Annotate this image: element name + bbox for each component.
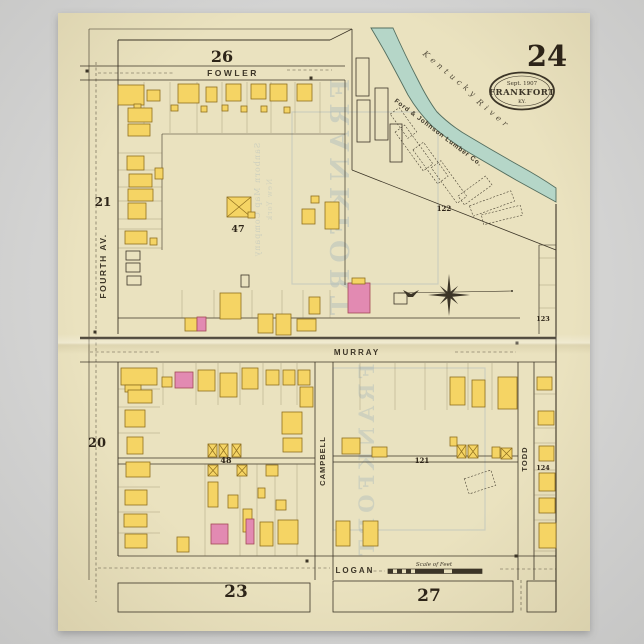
building-frame — [311, 196, 319, 203]
building-frame — [128, 108, 152, 122]
building-frame — [228, 495, 238, 508]
block-number-26: 26 — [211, 47, 233, 66]
block-number-21: 21 — [95, 195, 112, 209]
building-frame — [126, 462, 150, 477]
street-label-fowler: FOWLER — [207, 68, 259, 78]
building-frame — [302, 209, 315, 224]
building-frame — [222, 105, 228, 111]
building-brick — [211, 524, 228, 544]
building-frame — [121, 368, 157, 385]
marker-dot — [515, 555, 518, 558]
building-frame — [128, 390, 152, 403]
street-label-campbell: CAMPBELL — [318, 436, 327, 486]
watermark-sanborn: Sanborn Map Company — [253, 143, 262, 258]
building-frame — [472, 380, 485, 407]
building-frame — [537, 377, 552, 390]
map-canvas: FRANKFORT FRANKFORT Sanborn Map Company … — [0, 0, 644, 644]
building-frame — [185, 318, 197, 331]
building-frame — [125, 410, 145, 427]
sanborn-map-poster: FRANKFORT FRANKFORT Sanborn Map Company … — [0, 0, 644, 644]
marker-dot — [94, 331, 97, 334]
street-label-todd: TODD — [520, 446, 529, 471]
building-frame — [198, 370, 215, 391]
building-frame — [260, 522, 273, 546]
stamp-date: Sept. 1907 — [507, 81, 538, 87]
building-frame — [336, 521, 350, 546]
building-frame — [282, 412, 302, 434]
building-frame — [539, 523, 556, 548]
street-label-fourth-av: FOURTH AV. — [98, 233, 108, 298]
building-frame — [342, 438, 360, 454]
building-frame — [258, 314, 273, 333]
block-number-121: 121 — [415, 456, 430, 465]
building-frame — [276, 500, 286, 510]
building-frame — [162, 377, 172, 387]
block-number-124: 124 — [536, 464, 550, 472]
building-frame — [363, 521, 378, 546]
scale-bar-seg5 — [452, 569, 482, 574]
building-frame — [297, 319, 316, 331]
building-frame — [498, 377, 517, 409]
building-frame — [178, 84, 199, 103]
block-number-123: 123 — [536, 315, 550, 323]
building-frame — [372, 447, 387, 457]
building-frame — [266, 370, 279, 385]
building-frame — [242, 368, 258, 389]
building-frame — [450, 437, 457, 446]
sheet-number: 24 — [527, 39, 567, 73]
block-number-122: 122 — [437, 204, 452, 213]
building-frame — [538, 411, 554, 425]
building-frame — [125, 534, 147, 548]
building-frame — [127, 156, 144, 170]
compass-east-dot — [511, 290, 513, 292]
building-frame — [124, 514, 147, 527]
building-brick — [348, 283, 370, 313]
building-frame — [278, 520, 298, 544]
block-number-20: 20 — [88, 436, 106, 451]
building-frame — [276, 314, 291, 335]
building-frame — [226, 84, 241, 101]
building-frame — [283, 438, 302, 452]
block-number-48: 48 — [220, 455, 232, 465]
building-frame — [125, 231, 147, 244]
building-brick — [246, 519, 254, 544]
building-frame — [206, 87, 217, 102]
scale-label: Scale of Feet — [416, 562, 453, 568]
building-frame — [266, 465, 278, 476]
building-frame — [208, 482, 218, 507]
scale-bar-seg2 — [397, 569, 402, 574]
building-brick — [175, 372, 193, 388]
building-frame — [492, 447, 500, 458]
building-frame — [298, 370, 310, 385]
building-frame — [283, 370, 295, 385]
building-frame — [539, 446, 554, 461]
building-frame — [155, 168, 163, 179]
building-frame — [171, 105, 178, 111]
building-frame — [261, 106, 267, 112]
watermark-newyork: New York — [266, 179, 274, 221]
stamp-city: FRANKFORT — [489, 88, 555, 98]
marker-dot — [306, 560, 309, 563]
marker-dot — [310, 77, 313, 80]
scale-bar-seg1 — [388, 569, 393, 574]
building-frame — [177, 537, 189, 552]
scale-bar-seg4 — [415, 569, 444, 574]
building-frame — [127, 437, 143, 454]
building-frame — [201, 106, 207, 112]
building-frame — [241, 106, 247, 112]
compass-center-dot — [447, 293, 450, 296]
building-frame — [129, 174, 152, 187]
building-frame — [128, 189, 153, 201]
building-frame — [258, 488, 265, 498]
building-frame — [297, 84, 312, 101]
block-number-27: 27 — [417, 586, 441, 606]
fold-crease — [58, 334, 590, 354]
building-frame — [300, 387, 313, 407]
block-number-47: 47 — [231, 224, 244, 235]
building-frame — [539, 498, 555, 513]
stamp-state: KY. — [518, 99, 526, 105]
building-frame — [128, 203, 146, 219]
building-frame — [220, 373, 237, 397]
building-frame — [270, 84, 287, 101]
building-frame — [284, 107, 290, 113]
block-number-23: 23 — [224, 582, 248, 602]
building-frame — [150, 238, 157, 245]
building-frame — [128, 124, 150, 136]
building-frame — [147, 90, 160, 101]
building-frame — [325, 202, 339, 229]
building-frame — [352, 278, 365, 284]
scale-bar-seg3 — [406, 569, 411, 574]
building-frame — [539, 473, 555, 491]
building-frame — [220, 293, 241, 319]
street-label-logan: LOGAN — [336, 566, 375, 575]
building-frame — [248, 212, 255, 218]
building-frame — [450, 377, 465, 405]
building-frame — [251, 84, 266, 99]
building-frame — [309, 297, 320, 314]
building-frame — [118, 85, 144, 105]
marker-dot — [86, 70, 89, 73]
building-brick — [197, 317, 206, 331]
building-frame — [125, 490, 147, 505]
